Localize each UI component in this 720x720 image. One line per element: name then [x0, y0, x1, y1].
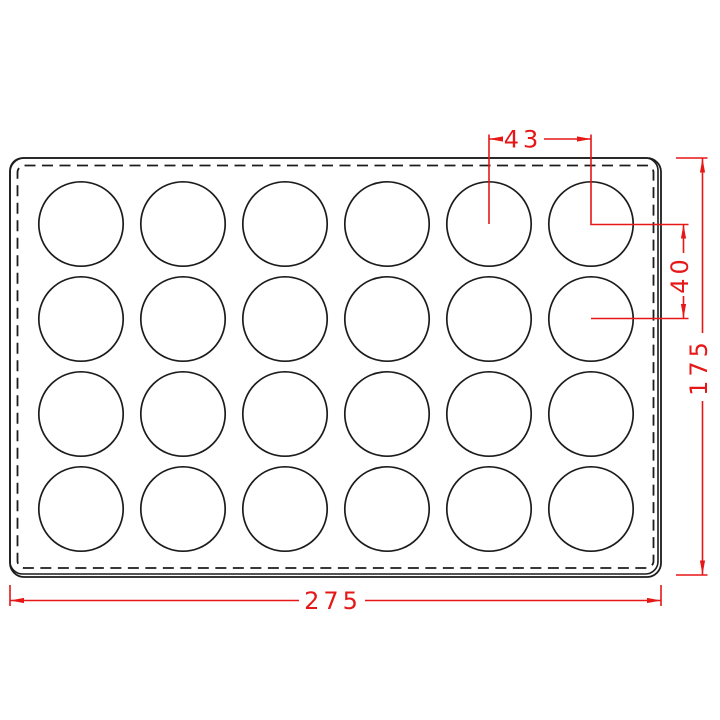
arrowhead-left: [10, 598, 24, 603]
cavity-circle: [141, 182, 225, 266]
extension-line: [591, 135, 689, 225]
tray-body: [10, 158, 661, 577]
cavity-circle: [345, 277, 429, 361]
tray-outer-edge: [10, 158, 661, 577]
cavity-circle: [141, 277, 225, 361]
cavity-circle: [345, 467, 429, 551]
cavity-circle: [447, 372, 531, 456]
cavity-circle: [39, 277, 123, 361]
cavity-circle: [549, 467, 633, 551]
dim-cavity-pitch-y: 40: [591, 224, 694, 319]
cavity-circle: [39, 372, 123, 456]
cavity-circle: [243, 277, 327, 361]
cavity-circle: [549, 372, 633, 456]
dim-overall-height: 175: [676, 158, 713, 575]
cavity-circle: [141, 467, 225, 551]
tray-dashed-inset-line: [18, 166, 654, 569]
overall-height-label: 175: [685, 338, 713, 396]
arrowhead-left: [489, 136, 503, 141]
cavity-pitch-x-label: 43: [504, 126, 543, 154]
dim-overall-width: 275: [10, 585, 661, 615]
tray-rim-inner-edge: [10, 158, 658, 574]
cavity-circle: [39, 467, 123, 551]
overall-width-label: 275: [304, 587, 362, 615]
arrowhead-down: [700, 561, 705, 575]
tray-dimension-drawing: 43 40 175 275: [0, 0, 720, 720]
cavity-grid: [39, 182, 633, 551]
arrowhead-right: [647, 598, 661, 603]
cavity-circle: [141, 372, 225, 456]
arrowhead-right: [577, 136, 591, 141]
cavity-circle: [345, 182, 429, 266]
cavity-circle: [243, 182, 327, 266]
cavity-circle: [243, 467, 327, 551]
arrowhead-up: [700, 159, 705, 173]
cavity-pitch-y-label: 40: [666, 255, 694, 294]
cavity-circle: [447, 277, 531, 361]
arrowhead-up: [681, 225, 686, 239]
technical-drawing-canvas: 43 40 175 275: [0, 0, 720, 720]
cavity-circle: [39, 182, 123, 266]
arrowhead-down: [681, 304, 686, 318]
cavity-circle: [345, 372, 429, 456]
cavity-circle: [447, 467, 531, 551]
cavity-circle: [243, 372, 327, 456]
